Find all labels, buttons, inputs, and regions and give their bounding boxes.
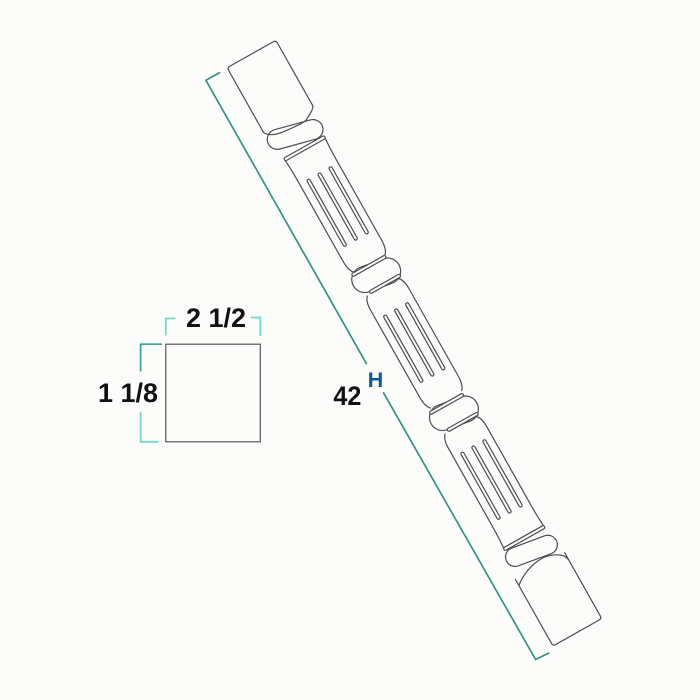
svg-text:H: H — [368, 368, 384, 392]
svg-text:42: 42 — [333, 381, 361, 411]
svg-text:2 1/2: 2 1/2 — [186, 303, 246, 333]
svg-text:1 1/8: 1 1/8 — [98, 378, 158, 408]
